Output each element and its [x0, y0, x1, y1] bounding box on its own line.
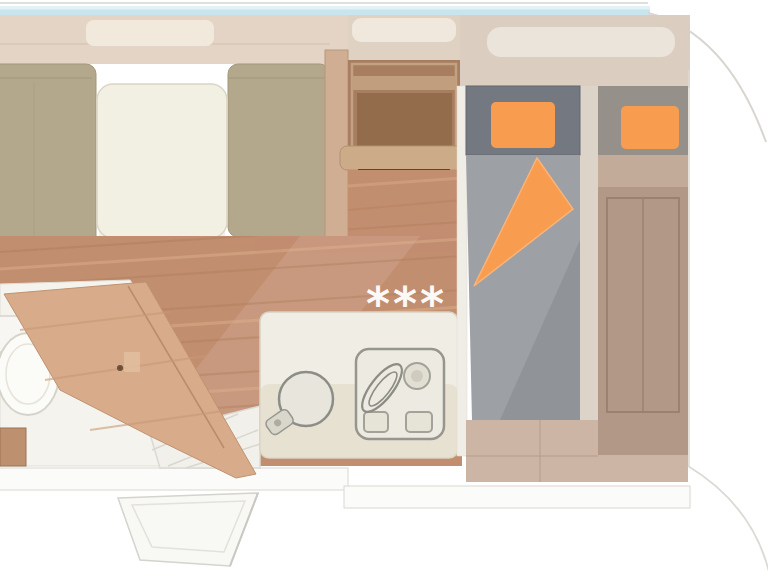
bed-gap-panel [580, 86, 598, 420]
bottom-wall-right [344, 486, 690, 508]
bed-headboard-highlight [487, 27, 675, 57]
dinette-table [97, 84, 227, 238]
bathroom-cabinet-box [0, 428, 26, 466]
bed-left [466, 86, 580, 420]
top-wall-trim-highlight [0, 6, 650, 10]
cabinet-top-highlight [352, 18, 456, 42]
lounge-window [86, 20, 214, 46]
stove [355, 349, 444, 439]
bed-right-top-band [598, 155, 688, 187]
caravan-floorplan: *** [0, 0, 768, 576]
bottom-wall-left [0, 468, 348, 490]
lounge-divider-panel [325, 50, 348, 240]
door-handle-plate [124, 352, 140, 372]
floor-marker: *** [366, 277, 447, 331]
door-handle [117, 365, 123, 371]
bed-right-pillow [621, 106, 679, 149]
bed-right [598, 86, 688, 455]
dinette-bench-right [228, 64, 330, 237]
bed-left-pillow [491, 102, 555, 148]
mid-cabinet [340, 60, 466, 170]
